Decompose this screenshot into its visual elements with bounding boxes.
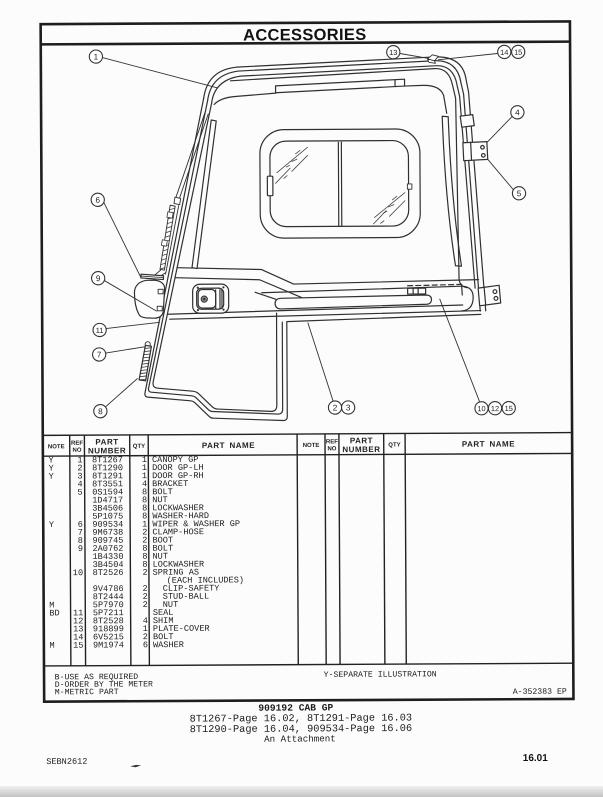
svg-text:PART: PART: [95, 437, 118, 446]
svg-text:9: 9: [96, 274, 101, 283]
svg-text:QTY: QTY: [133, 444, 145, 450]
svg-text:8T2526: 8T2526: [93, 568, 124, 578]
svg-text:16.01: 16.01: [523, 753, 549, 764]
svg-text:NO: NO: [327, 446, 336, 452]
svg-text:M: M: [49, 641, 54, 651]
svg-text:PART NAME: PART NAME: [462, 440, 515, 449]
svg-text:3: 3: [346, 403, 351, 412]
svg-text:NOTE: NOTE: [48, 444, 65, 450]
svg-text:11: 11: [96, 326, 104, 335]
svg-text:10: 10: [73, 568, 83, 578]
svg-text:13: 13: [389, 48, 397, 57]
svg-text:2: 2: [143, 600, 148, 610]
svg-text:10: 10: [477, 404, 485, 413]
svg-text:QTY: QTY: [388, 443, 400, 449]
svg-text:BD: BD: [49, 608, 59, 618]
svg-text:REF: REF: [71, 441, 83, 447]
svg-text:NUMBER: NUMBER: [88, 446, 126, 455]
svg-text:6: 6: [95, 196, 100, 205]
svg-text:Y-SEPARATE ILLUSTRATION: Y-SEPARATE ILLUSTRATION: [324, 670, 437, 680]
svg-text:6: 6: [143, 640, 148, 650]
svg-text:Y: Y: [49, 472, 54, 482]
svg-text:An Attachment: An Attachment: [264, 733, 336, 744]
svg-text:NO: NO: [73, 448, 82, 454]
svg-text:Y: Y: [49, 520, 54, 530]
svg-text:7: 7: [97, 350, 102, 359]
svg-text:9: 9: [78, 544, 83, 554]
svg-text:5: 5: [77, 488, 82, 498]
svg-text:REF: REF: [326, 439, 338, 445]
svg-text:M-METRIC PART: M-METRIC PART: [55, 688, 119, 697]
svg-text:15: 15: [514, 48, 522, 57]
svg-text:1: 1: [94, 52, 99, 61]
svg-text:8: 8: [98, 407, 103, 416]
svg-text:PART: PART: [350, 436, 373, 445]
svg-text:15: 15: [505, 404, 513, 413]
svg-text:2: 2: [142, 568, 147, 578]
svg-text:12: 12: [491, 404, 499, 413]
svg-text:SEBN2612: SEBN2612: [46, 757, 87, 767]
svg-text:NOTE: NOTE: [303, 443, 320, 449]
svg-text:4: 4: [515, 108, 520, 117]
svg-text:NUMBER: NUMBER: [342, 445, 380, 454]
svg-text:15: 15: [73, 641, 83, 651]
svg-text:5: 5: [517, 189, 522, 198]
svg-text:PART NAME: PART NAME: [202, 441, 255, 450]
svg-text:ACCESSORIES: ACCESSORIES: [243, 26, 367, 45]
svg-text:A-352383 EP: A-352383 EP: [513, 688, 567, 697]
svg-text:WASHER: WASHER: [153, 640, 184, 650]
svg-text:9M1974: 9M1974: [93, 640, 124, 650]
svg-text:14: 14: [500, 48, 508, 57]
svg-text:2: 2: [333, 403, 338, 412]
